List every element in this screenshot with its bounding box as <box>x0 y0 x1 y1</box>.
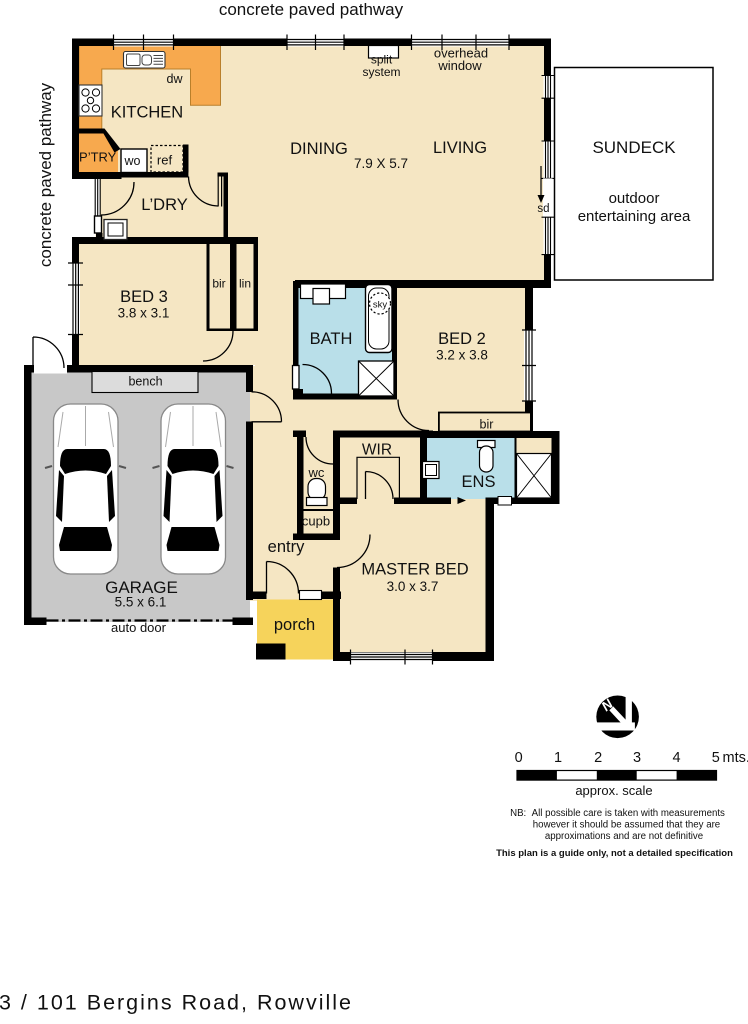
svg-text:sky: sky <box>373 300 388 311</box>
svg-text:bir: bir <box>212 277 225 291</box>
svg-text:This plan is a guide only, not: This plan is a guide only, not a detaile… <box>496 848 733 859</box>
svg-text:dw: dw <box>167 72 184 86</box>
svg-text:P’TRY: P’TRY <box>79 150 117 165</box>
svg-text:BATH: BATH <box>310 330 353 348</box>
svg-text:DINING: DINING <box>290 140 348 158</box>
svg-text:2: 2 <box>594 750 602 766</box>
svg-text:7.9 X 5.7: 7.9 X 5.7 <box>354 156 408 171</box>
svg-text:approximations and are not def: approximations and are not definitive <box>545 831 703 842</box>
svg-text:auto door: auto door <box>111 620 167 635</box>
svg-text:ENS: ENS <box>462 473 496 491</box>
svg-text:however it should be assumed t: however it should be assumed that they a… <box>533 820 720 831</box>
svg-text:MASTER BED: MASTER BED <box>361 561 468 579</box>
svg-text:3.0 x 3.7: 3.0 x 3.7 <box>387 579 439 594</box>
svg-text:3: 3 <box>633 750 641 766</box>
svg-text:entertaining area: entertaining area <box>578 208 691 225</box>
svg-text:wo: wo <box>124 154 141 168</box>
svg-text:bir: bir <box>480 418 494 432</box>
svg-text:cupb: cupb <box>302 514 330 529</box>
svg-text:system: system <box>362 65 400 79</box>
svg-text:3.8 x 3.1: 3.8 x 3.1 <box>118 306 170 321</box>
svg-text:1: 1 <box>554 750 562 766</box>
svg-text:concrete paved pathway: concrete paved pathway <box>219 0 404 19</box>
svg-text:SUNDECK: SUNDECK <box>592 138 676 157</box>
svg-text:ref: ref <box>157 153 173 168</box>
svg-text:outdoor: outdoor <box>609 190 660 207</box>
svg-text:BED 2: BED 2 <box>438 330 486 348</box>
svg-text:sd: sd <box>537 203 549 215</box>
svg-text:concrete paved pathway: concrete paved pathway <box>36 82 55 267</box>
svg-text:3 / 101 Bergins Road, Rowville: 3 / 101 Bergins Road, Rowville <box>0 991 353 1015</box>
svg-text:4: 4 <box>673 750 681 766</box>
svg-text:5: 5 <box>712 750 720 766</box>
svg-text:BED 3: BED 3 <box>120 288 168 306</box>
svg-text:mts.: mts. <box>723 750 748 766</box>
svg-text:KITCHEN: KITCHEN <box>111 104 183 122</box>
svg-text:L’DRY: L’DRY <box>141 196 187 214</box>
svg-text:WIR: WIR <box>362 442 392 459</box>
svg-text:entry: entry <box>268 538 305 556</box>
svg-text:porch: porch <box>274 616 315 634</box>
svg-text:5.5 x 6.1: 5.5 x 6.1 <box>115 595 167 610</box>
svg-text:window: window <box>437 58 482 73</box>
svg-text:bench: bench <box>128 375 162 389</box>
svg-text:0: 0 <box>515 750 523 766</box>
svg-text:wc: wc <box>308 465 325 480</box>
svg-text:lin: lin <box>239 277 251 291</box>
svg-text:NB: All possible care is take: NB: All possible care is taken with meas… <box>510 808 725 819</box>
svg-text:LIVING: LIVING <box>433 139 487 157</box>
svg-text:3.2 x 3.8: 3.2 x 3.8 <box>436 348 488 363</box>
svg-text:approx. scale: approx. scale <box>575 783 652 798</box>
